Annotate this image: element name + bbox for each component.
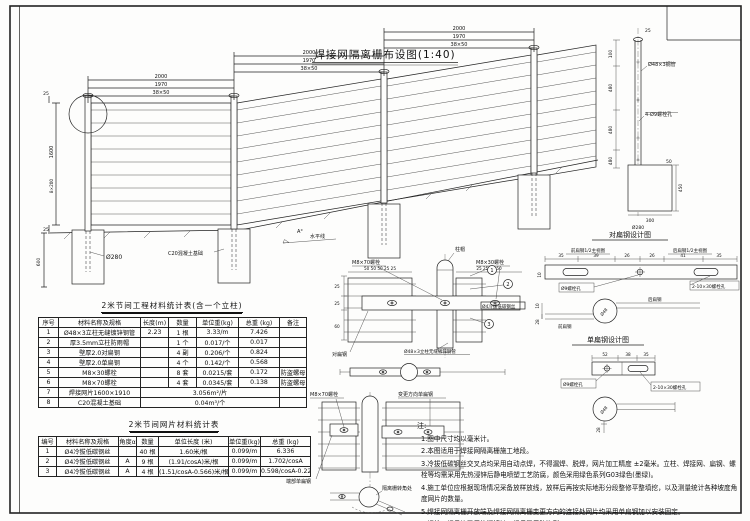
horizon-label: 水平线 <box>310 233 325 240</box>
dim-mesh-height-sub: 8×200 <box>49 179 54 194</box>
slope-angle-label: A° <box>297 229 303 235</box>
corner-bolt70-label: M8×70螺栓 <box>310 391 338 398</box>
mesh-table-section: 2米节间网片材料统计表 编号 材料名称及规格 角度α 数量 单位长度 (米) 单… <box>38 419 310 477</box>
post-holes-label: 4-Ø9螺栓孔 <box>645 111 672 118</box>
pair-dim-1: 39 <box>593 253 599 258</box>
pair-sec-10: 10 <box>535 303 540 309</box>
pair-dim-5: 35 <box>716 253 722 258</box>
pair-slot-label: 2-10×30螺栓孔 <box>692 283 726 290</box>
pair-dim-3: 26 <box>649 253 655 258</box>
concrete-base-label: C20混凝土基础 <box>168 250 203 257</box>
table-row: 3Ø4冷拔低碳钢丝A4 根(1.51/cosA-0.566)米/根0.099/m… <box>39 467 311 477</box>
pair-flat-title: 对扁钢设计图 <box>609 230 651 239</box>
materials-table-section: 2米节间工程材料统计表(含一个立柱) 序号 材料名称及规格 长度(m) 数量 单… <box>38 300 306 408</box>
corner-plan-view: 隔离栅转角处 <box>330 485 412 515</box>
dim-top-25: 25 <box>43 91 49 97</box>
table1-title: 2米节间工程材料统计表(含一个立柱) <box>101 300 242 313</box>
mesh-table: 编号 材料名称及规格 角度α 数量 单位长度 (米) 单位重(kg) 总重 (k… <box>38 436 311 477</box>
dim-span3-2000: 2000 <box>453 26 466 32</box>
pair-flat-detail: 对扁钢设计图 前扁钢1/2主视图 后扁钢1/2主视图 35 39 26 26 4… <box>535 230 739 330</box>
notes-section: 注: 1.图中尺寸均以毫米计。 2.本图适用于焊接网隔离栅施工地段。 3.冷拔低… <box>417 421 739 521</box>
foundation-dia-label: Ø280 <box>106 254 122 261</box>
single-hole-label: Ø9螺栓孔 <box>563 381 583 388</box>
joint-dim-60: 60 <box>334 324 340 329</box>
th-length: 长度(m) <box>141 318 169 328</box>
table-row: 4壁厚2.0单扁钢4 个0.142/个0.568 <box>39 358 307 368</box>
bolt30-label: M8×30螺栓 <box>476 259 504 266</box>
dim-bottom-25: 25 <box>43 227 49 233</box>
front-view-label: 前扁钢1/2主视图 <box>571 247 606 254</box>
joint-detail: 50 50 50 25 25 25 25 50 50 25 25 60 柱帽 M… <box>332 246 525 381</box>
note-item: 3.冷拔低碳钢丝交叉点均采用自动点焊，不得漏焊、脱焊，网片加工精度 ±2毫米。立… <box>421 459 739 482</box>
dim-mesh-height: 1600 <box>49 146 55 159</box>
front-flat-label: 前扁钢 <box>558 323 572 330</box>
table-row: 8C20混凝土基础0.04m³/个 <box>39 398 307 408</box>
pair-hole-label: Ø9螺栓孔 <box>561 285 581 292</box>
dim-span3-1970: 1970 <box>453 34 466 40</box>
post-foundation-dia: Ø280 <box>632 224 644 231</box>
drawing-sheet: 焊接网隔离栅布设图(1:40) <box>0 0 750 521</box>
drawing-title: 焊接网隔离栅布设图(1:40) <box>314 48 455 61</box>
post-pipe-label: Ø48×3钢管 <box>648 61 676 68</box>
table-row: 2厚3.5mm立柱防雨帽1 个0.017/个0.017 <box>39 338 307 348</box>
post-dim-480a: 480 <box>608 84 614 93</box>
dim-span1-wires: 38×50 <box>153 90 170 96</box>
table-row: 1Ø4冷拔低碳钢丝40 根1.60米/根0.099/m6.336 <box>39 447 311 457</box>
table-row: 1Ø48×3立柱无缝镀锌钢管2.231 根3.33/m7.426 <box>39 328 307 338</box>
pair-dim-10: 10 <box>537 272 542 278</box>
joint-post-label: Ø48×3立柱无缝镀锌钢管 <box>404 348 456 355</box>
post-dim-450: 450 <box>678 184 684 193</box>
dim-span3-wires: 38×50 <box>451 42 468 48</box>
th-material: 材料名称及规格 <box>59 318 141 328</box>
post-detail: 25 100 480 480 480 Ø48×3钢管 4-Ø9螺栓孔 50 45… <box>608 28 684 231</box>
callout-3: 3 <box>487 322 490 328</box>
notes-title: 注: <box>417 421 739 433</box>
post-dim-50: 50 <box>666 159 672 165</box>
end-flat-label: 端部单扁钢 <box>286 478 311 485</box>
table-row: 5M8×30螺栓8 套0.0215/套0.172防盗螺母 <box>39 368 307 378</box>
back-flat-label: 后扁钢 <box>648 296 662 303</box>
pair-dim-0: 35 <box>558 253 564 258</box>
th-totalweight: 总重 (kg) <box>239 318 280 328</box>
single-dim-35: 35 <box>643 352 649 357</box>
note-item: 2.本图适用于焊接网隔离栅施工地段。 <box>421 446 739 458</box>
dim-foundation-600: 600 <box>36 258 42 267</box>
callout-1: 1 <box>490 268 493 274</box>
bolt70-label: M8×70螺栓 <box>352 259 380 266</box>
post-dim-300: 300 <box>646 218 655 224</box>
post-dim-100: 100 <box>608 50 614 59</box>
note-item: 1.图中尺寸均以毫米计。 <box>421 434 739 446</box>
table2-header-row: 编号 材料名称及规格 角度α 数量 单位长度 (米) 单位重(kg) 总重 (k… <box>39 437 311 447</box>
single-flat-detail: 单扁钢设计图 52 38 35 Ø9螺栓孔 2-10×30螺栓孔 Ø48 28 <box>561 335 700 433</box>
th-qty: 数量 <box>169 318 197 328</box>
table2-title: 2米节间网片材料统计表 <box>129 419 220 432</box>
th-unitweight: 单位重(kg) <box>197 318 239 328</box>
joint-dim-25a: 25 <box>334 284 340 289</box>
wire-label: Ø4冷拔低碳钢丝 <box>482 303 516 310</box>
back-view-label: 后扁钢1/2主视图 <box>673 247 708 254</box>
table1-header-row: 序号 材料名称及规格 长度(m) 数量 单位重(kg) 总重 (kg) 备注 <box>39 318 307 328</box>
table-row: 2Ø4冷拔低碳钢丝A9 根(1.91/cosA)米/根0.099/m1.702/… <box>39 457 311 467</box>
joint-dims-left: 50 50 50 25 25 <box>364 266 396 271</box>
joint-plan-view <box>340 364 505 381</box>
note-item: 4.施工单位应根据现场情况采备放样放线，放样后再按实际地形分段整修平整填挖，以及… <box>421 483 739 506</box>
single-flat-title: 单扁钢设计图 <box>587 335 629 344</box>
pair-dim-2: 26 <box>624 253 630 258</box>
cap-label: 柱帽 <box>455 246 465 253</box>
dim-span2-wires: 38×50 <box>301 66 318 72</box>
pair-flat-label: 对扁钢 <box>332 351 347 358</box>
dim-span2-1970: 1970 <box>303 58 316 64</box>
turn-flat-label: 变更方向单扁钢 <box>398 391 433 398</box>
materials-table: 序号 材料名称及规格 长度(m) 数量 单位重(kg) 总重 (kg) 备注 1… <box>38 317 307 408</box>
post-dim-480c: 480 <box>608 157 614 166</box>
table-row: 3壁厚2.0对扁钢4 副0.206/个0.824 <box>39 348 307 358</box>
post-dim-480b: 480 <box>608 126 614 135</box>
table-row: 6M8×70螺栓4 套0.0345/套0.138防盗螺母 <box>39 378 307 388</box>
th-seq: 序号 <box>39 318 59 328</box>
single-dim-52: 52 <box>602 352 608 357</box>
fence-elevation: 2000 1970 38×50 2000 1970 38×50 2000 197… <box>36 26 598 287</box>
main-title: 焊接网隔离栅布设图(1:40) <box>312 48 458 65</box>
dim-span1-2000: 2000 <box>155 74 168 80</box>
dim-span1-1970: 1970 <box>155 82 168 88</box>
pair-dim-4: 41 <box>680 253 686 258</box>
corner-point-label: 隔离栅转角处 <box>382 485 412 492</box>
table-row: 7焊接网片1600×19103.056m²/片 <box>39 388 307 398</box>
joint-dim-25b: 25 <box>334 301 340 306</box>
single-slot-label: 2-10×30螺栓孔 <box>653 384 687 391</box>
th-note: 备注 <box>280 318 307 328</box>
pair-sec-28: 28 <box>535 319 540 325</box>
note-item: 5.焊接网隔离栅开放端及焊接网隔离栅变更方向的连接处网片均采用单扁钢加以安装固定… <box>421 507 739 519</box>
single-dim-38: 38 <box>625 352 631 357</box>
post-dim-25: 25 <box>645 28 651 34</box>
callout-2: 2 <box>506 282 509 288</box>
dim-span2-2000: 2000 <box>303 50 316 56</box>
